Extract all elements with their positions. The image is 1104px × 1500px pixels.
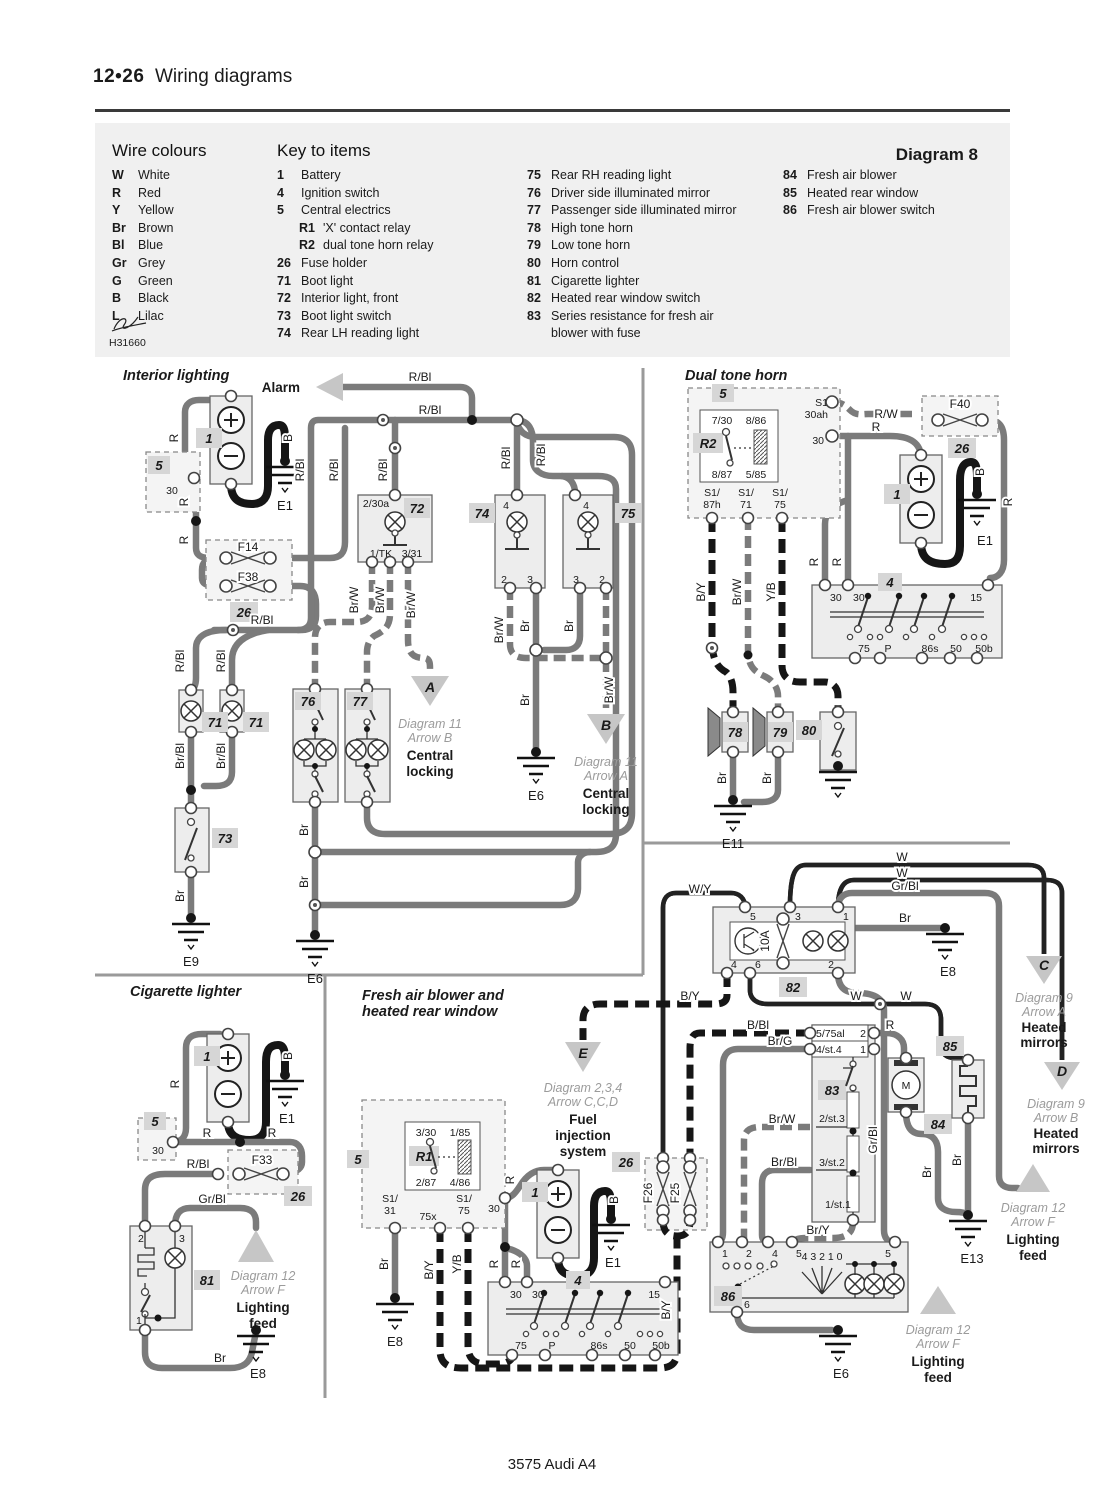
alarm-label: Alarm — [262, 380, 300, 395]
svg-text:Arrow B: Arrow B — [407, 731, 452, 745]
svg-text:Heated: Heated — [1033, 1126, 1078, 1141]
svg-text:E: E — [578, 1045, 588, 1061]
wire-label: R — [830, 557, 844, 566]
wire-label: Br — [214, 1351, 226, 1365]
wire-label: Gr/Bl — [198, 1192, 225, 1206]
pin-label: S1/ — [456, 1193, 472, 1205]
ground-label: E13 — [960, 1251, 983, 1266]
wire-label: Br/W — [347, 586, 361, 613]
svg-text:Diagram 12: Diagram 12 — [231, 1269, 296, 1283]
wire-label: Br — [173, 890, 187, 902]
pin-label: 30ah — [805, 409, 829, 421]
fuse-label: F33 — [252, 1153, 273, 1167]
svg-text:Diagram 9: Diagram 9 — [1015, 991, 1073, 1005]
component-badge: 85 — [943, 1039, 958, 1054]
pin-label: 30 — [152, 1145, 164, 1157]
svg-text:locking: locking — [582, 802, 629, 817]
wire-label: R — [807, 557, 821, 566]
pin-label: 30 — [830, 592, 842, 604]
pin-label: 6 — [744, 1299, 750, 1311]
pin-label: 30 — [812, 435, 824, 447]
wire-label: R — [503, 1175, 517, 1184]
svg-text:Lighting: Lighting — [1006, 1232, 1059, 1247]
ground-label: E6 — [528, 788, 544, 803]
fuse-label: 10A — [758, 930, 772, 951]
footer-model-label: 3575 Audi A4 — [0, 1456, 1104, 1473]
panel-title: Fresh air blower and — [362, 988, 505, 1004]
component-badge: 26 — [290, 1189, 306, 1204]
wire-label: Br — [562, 620, 576, 632]
wire-label: Br/G — [768, 1034, 793, 1048]
component-badge: 1 — [531, 1185, 538, 1200]
svg-text:Arrow A: Arrow A — [1021, 1005, 1066, 1019]
pin-label: S1/ — [382, 1193, 398, 1205]
component-badge: 71 — [208, 715, 222, 730]
wire-label: B/Y — [694, 582, 708, 601]
wire-label: R — [168, 1079, 182, 1088]
motor-label: M — [902, 1080, 911, 1092]
wire-label: Br/W — [404, 591, 418, 618]
component-badge: 78 — [728, 725, 743, 740]
wire-label: R — [167, 433, 181, 442]
wire-label: Br — [715, 772, 729, 784]
pin-label: S1/ — [704, 487, 720, 499]
component-badge: 4 — [573, 1273, 582, 1288]
ground-label: E1 — [279, 1111, 295, 1126]
pin-label: 5 — [750, 911, 756, 923]
ground-label: E9 — [183, 954, 199, 969]
ground-label: E1 — [977, 533, 993, 548]
panel-title: heated rear window — [362, 1004, 499, 1020]
wire-label: B — [281, 1052, 295, 1060]
battery-symbol — [537, 1165, 579, 1264]
pin-label: 15 — [970, 592, 982, 604]
pin-label: 1/st.1 — [825, 1199, 851, 1211]
fuse-label: F38 — [238, 570, 259, 584]
wire-label: Br/Bl — [214, 743, 228, 769]
wire-label: Y/B — [764, 582, 778, 601]
svg-text:feed: feed — [924, 1370, 952, 1385]
pin-label: 75x — [420, 1211, 438, 1223]
wire-label: Br/W — [730, 578, 744, 605]
svg-text:Lighting: Lighting — [911, 1354, 964, 1369]
wire-label: R/Bl — [327, 459, 341, 482]
ground-label: E11 — [722, 836, 744, 851]
panel-title: Interior lighting — [123, 368, 229, 384]
pin-label: 7/30 — [712, 415, 733, 427]
wire-label: B/Y — [680, 989, 699, 1003]
component-badge: 82 — [786, 980, 801, 995]
pin-label: 5/75al — [816, 1028, 845, 1040]
wire-label: Br — [920, 1166, 934, 1178]
wire-label: B/Y — [422, 1260, 436, 1279]
svg-text:Fuel: Fuel — [569, 1112, 597, 1127]
component-badge: 1 — [205, 431, 212, 446]
component-badge: 26 — [236, 605, 252, 620]
wire-label: Br/Bl — [173, 743, 187, 769]
offpage-arrow-e: E Diagram 2,3,4 Arrow C,C,D Fuel injecti… — [544, 1042, 623, 1159]
wire-label: Br — [377, 1258, 391, 1270]
pin-label: 1/85 — [450, 1127, 471, 1139]
svg-text:B: B — [601, 717, 611, 733]
wire-label: W/Y — [689, 882, 712, 896]
svg-text:injection: injection — [555, 1128, 611, 1143]
svg-text:Arrow F: Arrow F — [915, 1337, 961, 1351]
pin-label: 3 — [795, 911, 801, 923]
pin-label: 50b — [975, 643, 993, 655]
pin-label: 4/86 — [450, 1177, 471, 1189]
wire-label: B — [973, 468, 987, 476]
component-badge: R2 — [700, 436, 717, 451]
pin-label: 6 — [755, 959, 761, 971]
offpage-arrow-a: A Diagram 11 Arrow B Central locking — [398, 676, 462, 779]
offpage-arrow-b: B Diagram 11 Arrow A Central locking — [574, 714, 638, 817]
panel-title: Cigarette lighter — [130, 984, 243, 1000]
component-badge: 71 — [249, 715, 263, 730]
offpage-arrow-f: Diagram 12 Arrow F Lighting feed — [1001, 1164, 1066, 1263]
pin-label: 75 — [515, 1340, 527, 1352]
pin-label: 31 — [384, 1205, 396, 1217]
wire-label: R/Bl — [376, 459, 390, 482]
component-badge: 75 — [621, 506, 636, 521]
ground-label: E6 — [307, 971, 323, 986]
ground-label: E6 — [833, 1366, 849, 1381]
svg-text:Central: Central — [407, 748, 454, 763]
wire-label: R/Bl — [214, 650, 228, 673]
ground-label: E1 — [277, 498, 293, 513]
svg-text:Arrow F: Arrow F — [1010, 1215, 1056, 1229]
wire-label: B — [281, 434, 295, 442]
pin-label: 50 — [950, 643, 962, 655]
pin-label: 8/86 — [746, 415, 767, 427]
wire-label: B/Y — [659, 1300, 673, 1319]
offpage-arrow-f: Diagram 12 Arrow F Lighting feed — [231, 1230, 296, 1331]
svg-text:Diagram 11: Diagram 11 — [398, 717, 462, 731]
wire-label: Br/Y — [806, 1223, 829, 1237]
wire-label: R — [487, 1259, 501, 1268]
pin-label: 87h — [703, 499, 721, 511]
component-badge: 5 — [151, 1114, 159, 1129]
component-badge: 74 — [475, 506, 490, 521]
svg-text:Lighting: Lighting — [236, 1300, 289, 1315]
pin-label: 2/87 — [416, 1177, 437, 1189]
pin-label: 30 — [488, 1203, 500, 1215]
wire-label: R/Bl — [187, 1157, 210, 1171]
wire-label: B/Bl — [747, 1018, 769, 1032]
pin-label: 1 — [860, 1044, 866, 1056]
panel-interior-lighting: Interior lighting — [123, 368, 641, 986]
svg-text:Diagram 12: Diagram 12 — [1001, 1201, 1066, 1215]
svg-text:locking: locking — [406, 764, 453, 779]
svg-text:Central: Central — [583, 786, 630, 801]
alarm-arrow-icon — [316, 373, 343, 401]
pin-label: 2/30a — [363, 498, 389, 510]
pin-label: 15 — [648, 1289, 660, 1301]
wire-label: W — [896, 850, 908, 864]
svg-text:Arrow B: Arrow B — [1033, 1111, 1078, 1125]
wire-label: R/Bl — [251, 613, 274, 627]
pin-label: 5/85 — [746, 469, 767, 481]
pin-label: 50b — [652, 1340, 670, 1352]
svg-text:Diagram 12: Diagram 12 — [906, 1323, 971, 1337]
svg-text:feed: feed — [1019, 1248, 1047, 1263]
wire-label: R/Bl — [293, 459, 307, 482]
ground-label: E8 — [250, 1366, 266, 1381]
pin-label: 30 — [532, 1289, 544, 1301]
wire-label: Br/W — [492, 616, 506, 643]
battery-symbol — [207, 1029, 249, 1128]
component-badge: 73 — [218, 831, 233, 846]
wire-label: W — [896, 866, 908, 880]
offpage-arrow-d: D Diagram 9 Arrow B Heated mirrors — [1027, 1062, 1085, 1156]
wire-label: Gr/Bl — [891, 879, 918, 893]
wire-label: W — [850, 989, 862, 1003]
component-badge: 5 — [719, 386, 727, 401]
component-badge: 1 — [893, 487, 900, 502]
pin-label: 86s — [922, 643, 939, 655]
fuse-label: F14 — [238, 540, 259, 554]
svg-text:Diagram 11: Diagram 11 — [574, 755, 638, 769]
pin-label: 2 — [860, 1028, 866, 1040]
fuse-label: F25 — [668, 1182, 682, 1203]
panel-fresh-air-blower: Fresh air blower and heated rear window — [347, 850, 1085, 1385]
wire-label: R — [1001, 497, 1015, 506]
svg-text:A: A — [424, 679, 435, 695]
svg-text:Diagram 9: Diagram 9 — [1027, 1097, 1085, 1111]
wire-label: B — [607, 1196, 621, 1204]
pin-label: 4 — [772, 1248, 778, 1260]
wire-label: Br — [760, 772, 774, 784]
component-badge: 81 — [200, 1273, 214, 1288]
ground-label: E8 — [940, 964, 956, 979]
ground-label: E8 — [387, 1334, 403, 1349]
pin-label: S1/ — [772, 487, 788, 499]
svg-text:mirrors: mirrors — [1020, 1035, 1067, 1050]
component-badge: 4 — [885, 575, 894, 590]
svg-text:C: C — [1039, 957, 1050, 973]
wire-label: Br — [899, 911, 911, 925]
wire-label: Br — [950, 1154, 964, 1166]
offpage-arrow-f: Diagram 12 Arrow F Lighting feed — [906, 1286, 971, 1385]
wire-label: Br — [518, 620, 532, 632]
wire-label: Gr/Bl — [866, 1126, 880, 1153]
wire-label: R — [886, 1018, 895, 1032]
svg-text:Arrow C,C,D: Arrow C,C,D — [547, 1095, 618, 1109]
component-badge: 72 — [410, 501, 425, 516]
pin-label: 2 — [138, 1233, 144, 1245]
wire-label: R — [509, 1259, 523, 1268]
pin-label: 75 — [458, 1205, 470, 1217]
pin-label: P — [548, 1340, 555, 1352]
wire-label: R/Bl — [419, 403, 442, 417]
pin-label: 30 — [166, 485, 178, 497]
pin-label: 3/st.2 — [819, 1157, 845, 1169]
svg-text:D: D — [1057, 1063, 1067, 1079]
svg-text:Diagram 2,3,4: Diagram 2,3,4 — [544, 1081, 623, 1095]
component-badge: 79 — [773, 725, 788, 740]
svg-text:mirrors: mirrors — [1032, 1141, 1079, 1156]
rotary-position-labels: 4 3 2 1 0 — [802, 1251, 843, 1263]
component-badge: 26 — [954, 441, 970, 456]
fuse-label: F40 — [950, 397, 971, 411]
pin-label: 1 — [843, 911, 849, 923]
wire-label: Br/Bl — [771, 1155, 797, 1169]
component-badge: 84 — [931, 1117, 946, 1132]
pin-label: 4 — [583, 500, 589, 512]
component-badge: 26 — [618, 1155, 634, 1170]
pin-label: 86s — [591, 1340, 608, 1352]
wire-label: R — [203, 1126, 212, 1140]
ground-label: E1 — [605, 1255, 621, 1270]
panel-dual-tone-horn: Dual tone horn 5 7/30 8/86 8/87 5/85 R2 … — [685, 368, 1015, 851]
speaker-icon — [753, 708, 765, 756]
pin-label: 4/st.4 — [816, 1044, 842, 1056]
pin-label: 71 — [740, 499, 752, 511]
pin-label: 2/st.3 — [819, 1113, 845, 1125]
pin-label: 2 — [746, 1248, 752, 1260]
pin-label: 3 — [179, 1233, 185, 1245]
component-badge: 77 — [353, 694, 368, 709]
svg-text:Arrow F: Arrow F — [240, 1283, 286, 1297]
wire-label: Br/W — [769, 1112, 796, 1126]
wiring-diagram: Interior lighting — [0, 0, 1104, 1500]
pin-label: 2 — [828, 959, 834, 971]
pin-label: 75 — [774, 499, 786, 511]
pin-label: 5 — [885, 1248, 891, 1260]
pin-label: 75 — [858, 643, 870, 655]
pin-label: 4 — [503, 500, 509, 512]
wire-label: Br — [297, 824, 311, 836]
component-badge: 5 — [354, 1152, 362, 1167]
wire-label: R — [177, 497, 191, 506]
wire-label: R/Bl — [499, 447, 513, 470]
component-badge: 86 — [721, 1289, 736, 1304]
component-badge: 83 — [825, 1083, 840, 1098]
pin-label: 4 — [731, 959, 737, 971]
wire-label: Br — [518, 694, 532, 706]
wire-label: Br — [297, 876, 311, 888]
wire-label: R/W — [874, 407, 898, 421]
svg-text:Heated: Heated — [1021, 1020, 1066, 1035]
manual-page: 12•26 Wiring diagrams Wire colours WWhit… — [0, 0, 1104, 1500]
wire-label: Br/W — [373, 586, 387, 613]
component-badge: 76 — [301, 694, 316, 709]
component-badge: 1 — [203, 1049, 210, 1064]
wire-label: Y/B — [450, 1254, 464, 1273]
boot-light-symbol — [179, 685, 203, 738]
component-badge: 80 — [802, 723, 817, 738]
component-badge: R1 — [416, 1149, 433, 1164]
wire-label: R/Bl — [409, 370, 432, 384]
speaker-icon — [708, 708, 720, 756]
wire-label: W — [900, 989, 912, 1003]
wire-label: R — [177, 535, 191, 544]
svg-text:Arrow A: Arrow A — [583, 769, 628, 783]
pin-label: 3/30 — [416, 1127, 437, 1139]
pin-label: 30 — [510, 1289, 522, 1301]
panel-title: Dual tone horn — [685, 368, 787, 384]
pin-label: S1/ — [738, 487, 754, 499]
wire-label: R/Bl — [173, 650, 187, 673]
pin-label: 8/87 — [712, 469, 733, 481]
pin-label: P — [884, 643, 891, 655]
svg-text:system: system — [560, 1144, 607, 1159]
wire-label: Br/W — [602, 676, 616, 703]
pin-label: 50 — [624, 1340, 636, 1352]
wire-label: R/Bl — [534, 444, 548, 467]
pin-label: 30 — [853, 592, 865, 604]
component-badge: 5 — [155, 458, 163, 473]
pin-label: 1 — [722, 1248, 728, 1260]
wire-label: R — [268, 1126, 277, 1140]
panel-cigarette-lighter: Cigarette lighter 1 E1 5 30 F33 26 2 3 — [130, 984, 312, 1381]
wire-label: R — [872, 420, 881, 434]
fuse-label: F26 — [641, 1182, 655, 1203]
